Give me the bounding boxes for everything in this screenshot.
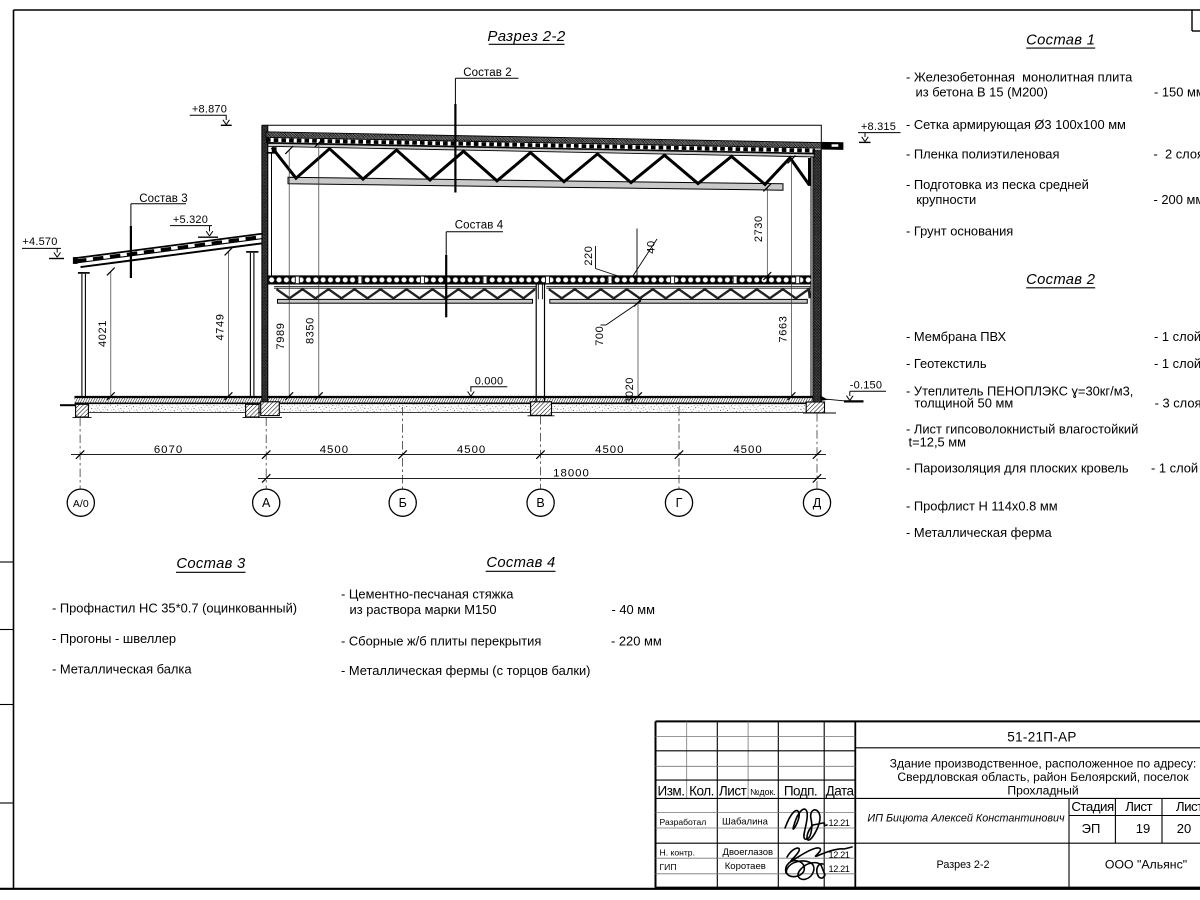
svg-text:- Пленка полиэтиленовая: - Пленка полиэтиленовая <box>906 147 1059 162</box>
svg-text:крупности: крупности <box>916 192 976 207</box>
svg-text:- 200 мм: - 200 мм <box>1154 192 1200 207</box>
svg-text:7663: 7663 <box>777 316 789 343</box>
svg-text:4500: 4500 <box>320 444 349 456</box>
svg-text:Двоеглазов: Двоеглазов <box>723 847 774 858</box>
svg-text:Стадия: Стадия <box>1071 799 1114 814</box>
svg-text:- 3 слоя: - 3 слоя <box>1155 396 1200 411</box>
svg-text:7989: 7989 <box>275 323 287 350</box>
svg-text:+8.315: +8.315 <box>861 121 896 133</box>
svg-text:- 150 мм: - 150 мм <box>1154 85 1200 100</box>
svg-text:12.21: 12.21 <box>829 850 850 860</box>
svg-text:4500: 4500 <box>457 444 486 456</box>
svg-text:Разрез 2-2: Разрез 2-2 <box>936 859 989 871</box>
svg-text:12.21: 12.21 <box>829 818 850 828</box>
svg-text:№док.: №док. <box>750 787 776 797</box>
svg-text:Д: Д <box>813 496 822 510</box>
svg-text:19: 19 <box>1136 821 1150 836</box>
svg-text:3020: 3020 <box>624 377 636 404</box>
svg-text:- Металлическая ферма: - Металлическая ферма <box>906 525 1052 540</box>
svg-text:Разрез 2-2: Разрез 2-2 <box>487 28 566 45</box>
svg-text:Б: Б <box>399 496 407 510</box>
svg-text:- 220 мм: - 220 мм <box>611 634 662 649</box>
svg-text:Состав 2: Состав 2 <box>463 67 512 79</box>
svg-text:А/0: А/0 <box>73 498 89 510</box>
svg-text:0.000: 0.000 <box>475 375 504 387</box>
svg-text:t=12,5 мм: t=12,5 мм <box>909 435 967 450</box>
svg-text:+4.570: +4.570 <box>22 236 57 248</box>
svg-text:Состав 4: Состав 4 <box>455 220 504 232</box>
svg-text:Лист: Лист <box>1125 799 1152 814</box>
svg-text:Разработал: Разработал <box>660 817 707 827</box>
svg-text:18000: 18000 <box>553 468 590 480</box>
svg-text:Состав 1: Состав 1 <box>1026 32 1095 48</box>
svg-text:- Железобетонная монолитная п: - Железобетонная монолитная плита <box>906 70 1133 85</box>
svg-text:Лист: Лист <box>719 783 747 798</box>
svg-text:Прохладный: Прохладный <box>1007 783 1078 797</box>
svg-text:ГИП: ГИП <box>660 862 677 872</box>
svg-text:- 1 слой: - 1 слой <box>1154 329 1200 344</box>
svg-text:+8.870: +8.870 <box>192 104 227 116</box>
svg-text:700: 700 <box>594 326 606 346</box>
svg-text:- Профлист Н 114х0.8 мм: - Профлист Н 114х0.8 мм <box>906 499 1058 514</box>
svg-text:8350: 8350 <box>305 317 317 344</box>
svg-text:А: А <box>262 496 271 510</box>
svg-text:- 2 слоя: - 2 слоя <box>1154 147 1200 162</box>
svg-text:В: В <box>536 496 544 510</box>
svg-text:- Пароизоляция для плоских кро: - Пароизоляция для плоских кровель <box>906 461 1129 476</box>
svg-text:- 40 мм: - 40 мм <box>612 602 656 617</box>
svg-text:ООО "Альянс": ООО "Альянс" <box>1105 857 1187 871</box>
svg-text:2730: 2730 <box>753 215 765 242</box>
svg-text:- Грунт основания: - Грунт основания <box>906 224 1013 239</box>
svg-text:20: 20 <box>1177 821 1191 836</box>
svg-text:Шабалина: Шабалина <box>722 816 769 827</box>
svg-text:Листов: Листов <box>1176 799 1200 814</box>
svg-text:Свердловская область, район Бе: Свердловская область, район Белоярский, … <box>897 770 1189 784</box>
svg-text:-0.150: -0.150 <box>850 379 882 391</box>
svg-text:Коротаев: Коротаев <box>725 861 766 872</box>
svg-text:220: 220 <box>583 246 595 266</box>
svg-text:4021: 4021 <box>97 320 109 347</box>
svg-text:- Цементно-песчаная стяжка: - Цементно-песчаная стяжка <box>341 587 514 602</box>
svg-text:Г: Г <box>676 496 683 510</box>
svg-text:- Металлическая фермы (с торцо: - Металлическая фермы (с торцов балки) <box>341 663 590 678</box>
svg-text:51-21П-АР: 51-21П-АР <box>1007 729 1076 744</box>
svg-text:Дата: Дата <box>826 783 855 798</box>
svg-text:- 1 слой: - 1 слой <box>1151 461 1198 476</box>
svg-text:из раствора марки М150: из раствора марки М150 <box>350 602 497 617</box>
svg-text:толщиной 50 мм: толщиной 50 мм <box>915 396 1014 411</box>
svg-text:Состав 3: Состав 3 <box>139 193 188 205</box>
svg-text:- Геотекстиль: - Геотекстиль <box>906 356 987 371</box>
svg-text:Кол.: Кол. <box>689 783 714 798</box>
svg-text:- Сборные ж/б плиты перекрытия: - Сборные ж/б плиты перекрытия <box>341 634 541 649</box>
svg-text:- Профнастил НС 35*0.7 (оцинко: - Профнастил НС 35*0.7 (оцинкованный) <box>52 601 297 616</box>
svg-text:12.21: 12.21 <box>829 864 850 874</box>
svg-text:- Прогоны - швеллер: - Прогоны - швеллер <box>52 631 176 646</box>
svg-text:- Мембрана ПВХ: - Мембрана ПВХ <box>906 329 1007 344</box>
svg-text:из бетона В 15 (М200): из бетона В 15 (М200) <box>916 85 1048 100</box>
svg-text:Состав 3: Состав 3 <box>176 556 246 572</box>
svg-text:Здание производственное, распо: Здание производственное, расположенное п… <box>890 756 1197 770</box>
svg-text:- 1 слой: - 1 слой <box>1154 356 1200 371</box>
svg-text:ЭП: ЭП <box>1082 821 1101 836</box>
svg-text:- Сетка армирующая Ø3 100х100: - Сетка армирующая Ø3 100х100 мм <box>906 117 1126 132</box>
svg-text:- Металлическая балка: - Металлическая балка <box>52 662 192 677</box>
svg-text:Подп.: Подп. <box>784 783 817 798</box>
svg-text:Н. контр.: Н. контр. <box>660 847 695 857</box>
svg-text:40: 40 <box>646 240 658 253</box>
svg-text:Изм.: Изм. <box>658 783 685 798</box>
svg-text:4500: 4500 <box>595 444 624 456</box>
svg-text:4749: 4749 <box>215 314 227 341</box>
svg-text:4500: 4500 <box>733 444 762 456</box>
svg-text:Состав 2: Состав 2 <box>1026 272 1096 288</box>
svg-text:ИП Бицюта Алексей Константинов: ИП Бицюта Алексей Константинович <box>867 812 1065 824</box>
svg-text:6070: 6070 <box>154 444 183 456</box>
svg-text:Состав 4: Состав 4 <box>486 555 555 571</box>
svg-text:- Подготовка из песка средней: - Подготовка из песка средней <box>906 177 1089 192</box>
svg-text:+5.320: +5.320 <box>173 214 208 226</box>
